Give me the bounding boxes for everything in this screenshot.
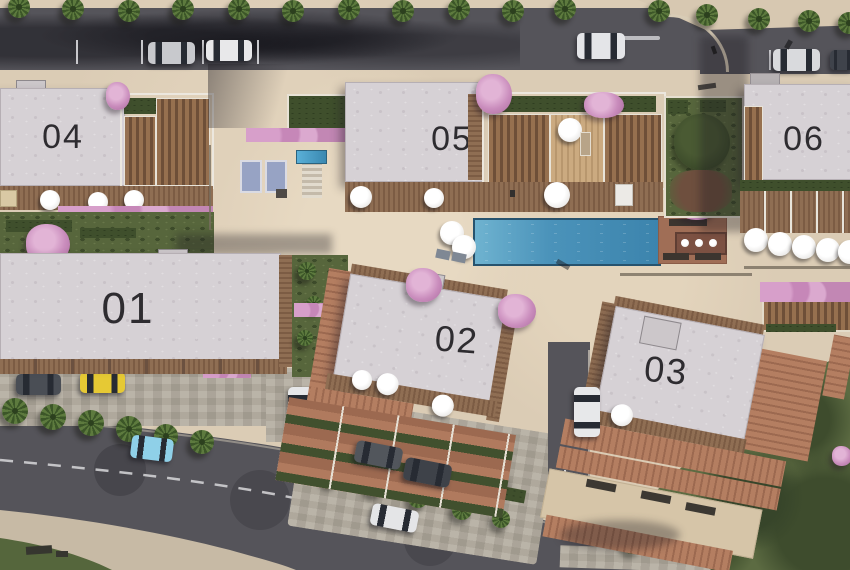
sun-lounger (240, 160, 262, 193)
table-seat (695, 239, 703, 247)
building-04-label: 04 (28, 118, 98, 156)
bench (695, 253, 721, 260)
pink-blossom-row (246, 128, 346, 142)
pink-blossom-tree (476, 74, 512, 114)
palm-tree-icon (298, 262, 316, 280)
parasol (350, 186, 372, 208)
car-white (574, 387, 600, 437)
building-03-label-text: 03 (624, 347, 708, 395)
building-06-unit[interactable]: 06 (740, 70, 850, 270)
pergola-deck (156, 98, 210, 186)
parasol (792, 235, 816, 259)
pink-blossom-tree (832, 446, 850, 466)
hedge-bed (287, 94, 349, 132)
building-04-unit[interactable]: 04 (0, 74, 216, 260)
palm-tree-icon (190, 430, 214, 454)
building-01-unit[interactable]: 01 (0, 245, 350, 380)
parasol (544, 182, 570, 208)
table-seat (681, 239, 689, 247)
hedge-bed (80, 228, 136, 238)
bench (663, 253, 689, 260)
tan-parasol (0, 190, 17, 207)
palm-tree-icon (78, 410, 104, 436)
pergola-table (675, 232, 727, 255)
deck-dividers (740, 191, 850, 233)
path-edge (620, 273, 752, 276)
roof-hedge (488, 96, 656, 112)
bench (640, 490, 671, 504)
pink-blossom-row (760, 282, 850, 302)
courtyard (208, 60, 348, 236)
site-plan-scene: 04 05 (0, 0, 850, 570)
bench (586, 479, 617, 493)
deck-dividers (0, 359, 287, 374)
parasol (744, 228, 768, 252)
path-edge (744, 266, 850, 269)
parasol (40, 190, 60, 210)
side-deck-strip (279, 255, 292, 367)
pergola-strip (744, 106, 763, 182)
roof-hedge (740, 180, 850, 191)
parasol (768, 232, 792, 256)
table-seat (709, 239, 717, 247)
pool-ladder-structure (302, 164, 322, 198)
building-06-label: 06 (768, 120, 840, 158)
grass-bench (56, 551, 68, 557)
parasol (838, 240, 850, 264)
parasol (352, 370, 372, 390)
person-on-deck (510, 190, 515, 197)
pink-blossom-tree (406, 268, 442, 302)
pergola-deck (604, 114, 662, 184)
outdoor-table (276, 189, 287, 198)
pergola-deck (124, 116, 156, 186)
parasol (816, 238, 840, 262)
palm-tree-icon (2, 398, 28, 424)
pink-blossom-tree (498, 294, 536, 328)
white-lounger (615, 184, 633, 206)
palm-tree-icon (297, 330, 313, 346)
swimming-pool (473, 218, 661, 266)
building-02-label-text: 02 (415, 317, 498, 363)
path-edge (209, 145, 211, 230)
pink-blossom-tree (106, 82, 130, 110)
hedge-bed (668, 100, 688, 114)
sun-lounger (580, 132, 591, 156)
terrace-shadow (560, 520, 680, 550)
pink-blossom-tree (584, 92, 624, 118)
car-light-blue (130, 435, 174, 463)
parasol (424, 188, 444, 208)
palm-tree-icon (40, 404, 66, 430)
plunge-pool (296, 150, 327, 164)
building-05-unit[interactable]: 05 (345, 74, 665, 214)
bench (685, 502, 716, 516)
pergola-deck (488, 114, 550, 184)
building-01-label: 01 (86, 285, 170, 333)
parasol (558, 118, 582, 142)
